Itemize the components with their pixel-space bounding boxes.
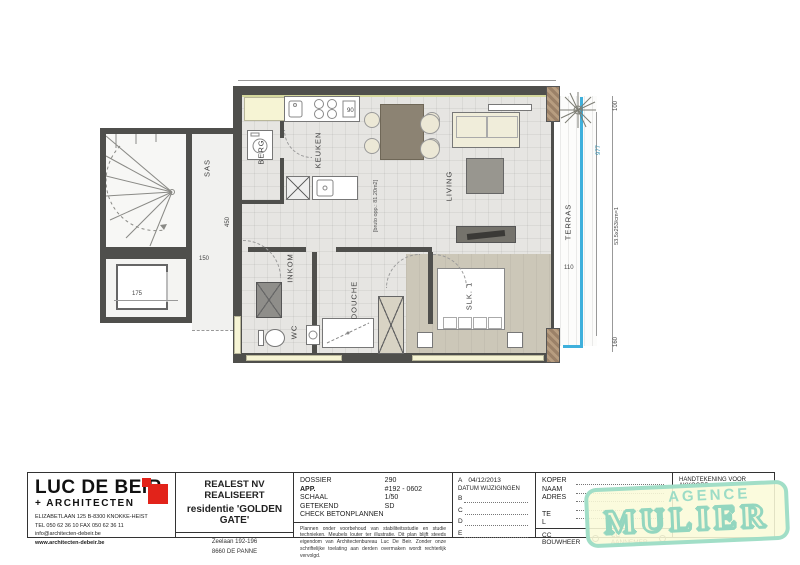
project-divider: [176, 532, 293, 533]
staircase-icon: [106, 134, 186, 247]
project-panel: REALEST NV REALISEERT residentie 'GOLDEN…: [176, 473, 294, 537]
getekend-value: SD: [385, 503, 395, 512]
cc-bouwheer-label: CC BOUWHEER: [542, 532, 588, 546]
elevator-car: [116, 264, 168, 310]
rev-c: C: [458, 507, 463, 516]
architect-tel: TEL 050 62 36 10 FAX 050 62 36 11: [35, 522, 168, 531]
room-label-berg: BERG: [257, 139, 266, 164]
terrace-railing: [580, 97, 583, 347]
elevator-door-line: [166, 272, 168, 302]
basin-icon: [307, 326, 319, 344]
dossier-panel: DOSSIER290 APP.#192 - 0602 SCHAAL1/50 GE…: [294, 473, 453, 537]
room-label-douche: DOUCHE: [350, 281, 359, 320]
pier-bottom: [546, 328, 560, 363]
room-label-living: LIVING: [445, 171, 454, 202]
window-wall-terrace: [551, 95, 554, 345]
window-strip-bedroom: [412, 355, 544, 361]
room-label-wc: WC: [290, 325, 299, 340]
tv-cabinet: [456, 226, 516, 243]
dossier-label: DOSSIER: [300, 477, 385, 486]
rev-d: D: [458, 518, 463, 527]
rev-header: DATUM WIJZIGINGEN: [458, 486, 530, 492]
dim-terras-top: 100: [613, 101, 619, 111]
naam-label: NAAM: [542, 486, 574, 495]
dining-table: [380, 104, 424, 160]
dim-terras-note: 53.5x253/cm=1: [614, 207, 620, 245]
note-area: [bruto opp.: 81.20m2]: [373, 180, 379, 232]
app-value: #192 - 0602: [385, 486, 422, 495]
project-line3: residentie 'GOLDEN GATE': [176, 504, 293, 526]
revisions-panel: A04/12/2013 DATUM WIJZIGINGEN B C D E: [453, 473, 536, 537]
rev-b: B: [458, 495, 462, 504]
nightstand: [417, 332, 433, 348]
coffee-table: [466, 158, 504, 194]
dim-sas-height: 450: [225, 217, 231, 227]
sofa-cushion: [456, 116, 487, 138]
sofa-cushion: [487, 116, 518, 138]
project-line2: REALISEERT: [176, 490, 293, 501]
toilet-tank: [258, 330, 264, 346]
dim-terras-bottom: 160: [613, 337, 619, 347]
toilet-bowl: [265, 329, 285, 347]
architect-logo-icon: [142, 478, 168, 504]
tv-icon: [467, 230, 505, 240]
toilet: [258, 328, 288, 348]
plant-icon: [558, 90, 598, 130]
room-label-slk1: SLK. 1: [465, 282, 474, 311]
check-row: CHECK BETONPLANNEN: [300, 511, 446, 520]
bed-pillow: [458, 317, 472, 329]
bed-pillow: [473, 317, 487, 329]
window-strip-left: [234, 316, 241, 354]
disclaimer: Plannen onder voorbehoud van stabiliteit…: [294, 523, 452, 563]
wall-berg-right-b: [280, 158, 284, 204]
sas-edge-dashed: [192, 330, 233, 331]
console-table: [488, 104, 532, 111]
island-sink-icon: [313, 177, 357, 199]
dim-line-top: [238, 80, 556, 81]
dim-kitchen: 90: [347, 108, 354, 114]
dim-sas-width: 150: [199, 256, 209, 262]
app-label: APP.: [300, 486, 385, 495]
rev-a-label: A: [458, 477, 462, 484]
room-label-inkom: INKOM: [286, 253, 295, 283]
rev-a-date: 04/12/2013: [468, 477, 501, 484]
architect-panel: LUC DE BEIR + ARCHITECTEN ELIZABETLAAN 1…: [28, 473, 176, 537]
washbasin: [306, 325, 320, 345]
schaal-value: 1/50: [385, 494, 399, 503]
agency-stamp: AGENCE MULIER: [584, 480, 790, 549]
room-label-keuken: KEUKEN: [314, 132, 323, 169]
sofa: [452, 112, 520, 148]
room-label-terras: TERRAS: [564, 204, 573, 240]
armchair: [420, 114, 440, 134]
window-strip-wc: [246, 355, 342, 361]
wall-sas-top: [192, 128, 238, 134]
wall-hall-b: [336, 247, 432, 252]
project-addr1: Zeelaan 192-196: [176, 538, 293, 548]
getekend-label: GETEKEND: [300, 503, 385, 512]
schaal-label: SCHAAL: [300, 494, 385, 503]
entrance-closet: [256, 282, 282, 318]
architect-web: www.architecten-debeir.be: [35, 539, 168, 548]
terrace-railing-return: [563, 345, 583, 348]
stairwell: [100, 128, 192, 253]
koper-label: KOPER: [542, 477, 574, 486]
dim-line-lift: [114, 300, 178, 301]
dining-chair: [364, 112, 380, 128]
wall-top: [233, 86, 560, 95]
adres-label: ADRES: [542, 494, 574, 503]
armchair: [420, 139, 440, 159]
dim-line-right-outer: [612, 96, 613, 352]
bed-pillow: [443, 317, 457, 329]
dim-terras-height: 977: [596, 145, 602, 155]
wall-berg-bottom: [242, 200, 282, 204]
l-label: L: [542, 519, 574, 528]
sas-corridor: [192, 130, 233, 330]
dim-terras-width: 110: [564, 265, 574, 271]
floor-plan: 175 SAS 450 150: [0, 0, 800, 460]
dim-lift-width: 175: [132, 291, 142, 297]
te-label: TE: [542, 511, 574, 520]
stamp-line2: MULIER: [589, 500, 786, 541]
wardrobe: [378, 296, 404, 354]
floor-plan-sheet: 175 SAS 450 150: [0, 0, 800, 565]
room-label-sas: SAS: [203, 159, 212, 177]
bed-pillow: [488, 317, 502, 329]
nightstand: [507, 332, 523, 348]
architect-email: info@architecten-debeir.be: [35, 530, 168, 539]
architect-address: ELIZABETLAAN 125 B-8300 KNOKKE-HEIST: [35, 513, 168, 522]
shower-tray: [322, 318, 374, 348]
kitchen-island: [312, 176, 358, 200]
shower-drain-icon: [323, 319, 373, 347]
duct-shaft: [286, 176, 310, 200]
dining-chair: [364, 138, 380, 154]
project-line1: REALEST NV: [176, 479, 293, 490]
rev-e: E: [458, 530, 462, 539]
project-addr2: 8660 DE PANNE: [176, 548, 293, 558]
blank-label: [542, 503, 574, 511]
dossier-value: 290: [385, 477, 397, 486]
